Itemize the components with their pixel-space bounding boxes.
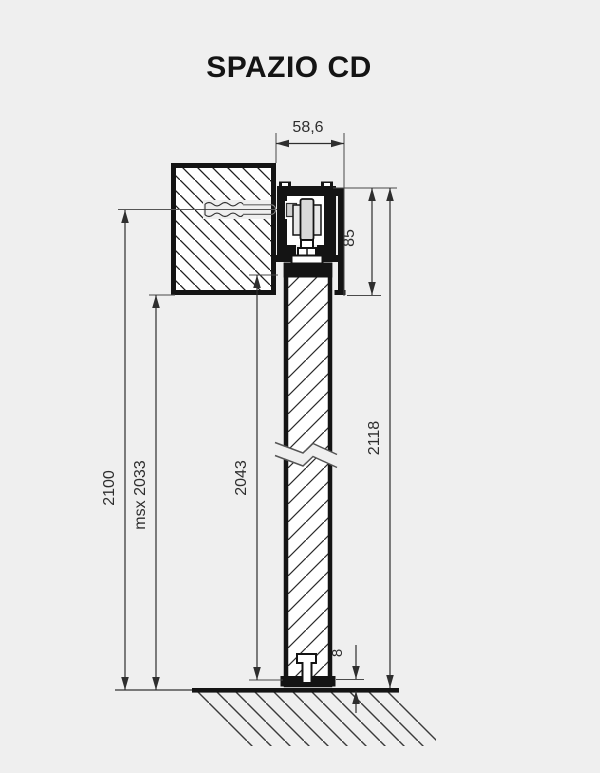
dim-label-header-height: 85 bbox=[341, 229, 358, 247]
dim-label-floor-gap: 8 bbox=[329, 649, 346, 657]
dim-label-overall-height: 2118 bbox=[366, 421, 383, 456]
dim-label-door-height: 2043 bbox=[233, 460, 250, 496]
dim-label-max-clear-height: msx 2033 bbox=[132, 460, 149, 529]
fixing-screw-dot-left bbox=[272, 256, 276, 260]
wall-section bbox=[174, 166, 281, 293]
technical-drawing-page: SPAZIO CD bbox=[0, 0, 600, 773]
dim-label-track-depth: 58,6 bbox=[292, 119, 323, 136]
roller-wheel bbox=[301, 199, 314, 240]
page-title: SPAZIO CD bbox=[206, 51, 372, 84]
door-clamp-plate bbox=[292, 256, 323, 264]
fixing-screw-dot-right bbox=[334, 256, 338, 260]
dim-label-clear-height: 2100 bbox=[101, 470, 118, 506]
door-panel bbox=[281, 263, 336, 687]
sliding-door-section-drawing: SPAZIO CD bbox=[0, 0, 600, 773]
